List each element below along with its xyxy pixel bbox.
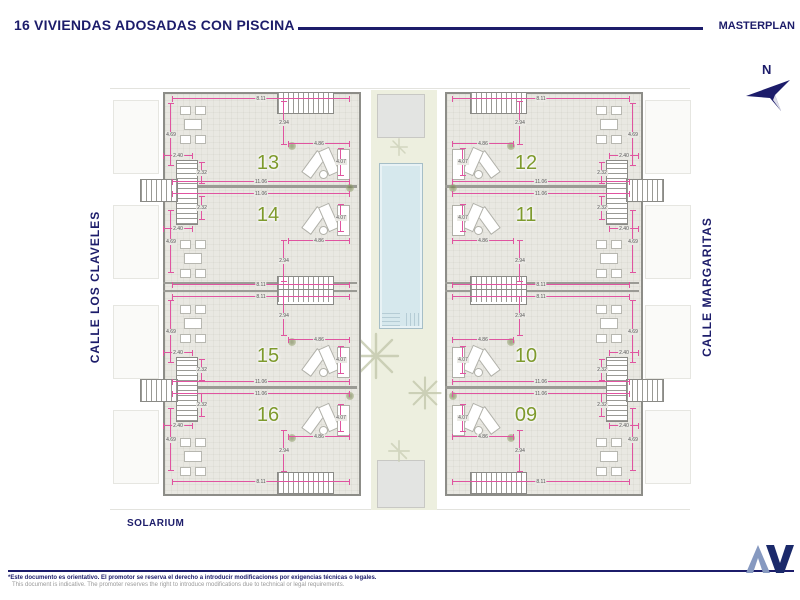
dim: 2.40	[163, 155, 193, 156]
dim-label: 4.69	[165, 437, 177, 443]
dim-label: 11.06	[534, 191, 548, 197]
dim-label: 2.40	[618, 226, 630, 232]
dim-label: 4.07	[335, 215, 347, 221]
unit-number-15: 15	[246, 345, 290, 368]
dim: 4.07	[462, 204, 463, 232]
dim-label: 4.86	[313, 434, 325, 440]
dim-label: 2.40	[618, 423, 630, 429]
dim: 2.94	[519, 430, 520, 472]
deck-bottom	[377, 460, 425, 508]
terrace-table-set	[180, 438, 206, 476]
terrace-table-set	[180, 240, 206, 278]
neighbour-building	[645, 305, 691, 379]
dim-label: 2.94	[278, 258, 290, 264]
dim-label: 4.07	[457, 415, 469, 421]
dim: 2.94	[283, 101, 284, 145]
stair	[470, 472, 527, 494]
dim: 4.69	[170, 103, 171, 166]
dim: 2.40	[163, 228, 193, 229]
dim: 2.94	[519, 101, 520, 145]
entry-stair	[626, 379, 664, 402]
masterplan-page: 16 VIVIENDAS ADOSADAS CON PISCINA MASTER…	[0, 0, 800, 600]
dim-label: 2.94	[278, 448, 290, 454]
dim-label: 2.32	[196, 170, 208, 176]
dim: 2.40	[609, 155, 639, 156]
dim: 4.07	[462, 404, 463, 432]
dim: 2.40	[609, 352, 639, 353]
masterplan-label: MASTERPLAN	[719, 20, 795, 32]
dim-label: 4.69	[627, 132, 639, 138]
dim-label: 2.40	[172, 423, 184, 429]
neighbour-building	[645, 100, 691, 174]
dim: 4.69	[632, 210, 633, 273]
dim: 2.32	[601, 196, 602, 220]
dim: 4.07	[340, 346, 341, 374]
dim-label: 4.69	[165, 239, 177, 245]
neighbour-building	[645, 410, 691, 484]
dim: 2.94	[519, 240, 520, 282]
dim-label: 4.07	[335, 159, 347, 165]
plant	[346, 184, 354, 192]
dim-label: 2.32	[196, 205, 208, 211]
dim: 4.86	[288, 143, 350, 144]
palm-tree	[408, 376, 442, 410]
stair	[277, 92, 334, 114]
neighbour-building	[113, 205, 159, 279]
dim: 4.07	[340, 204, 341, 232]
dim: 4.86	[452, 240, 514, 241]
dim: 2.32	[601, 393, 602, 417]
dim-label: 8.11	[535, 96, 546, 102]
dim: 2.32	[601, 359, 602, 381]
dim: 8.11	[452, 296, 630, 297]
dim: 4.69	[170, 408, 171, 471]
dim: 2.94	[283, 430, 284, 472]
dim: 2.32	[201, 196, 202, 220]
terrace-table-set	[596, 106, 622, 144]
dim-label: 4.69	[627, 437, 639, 443]
palm-tree	[390, 138, 408, 156]
dim-label: 11.06	[534, 179, 548, 185]
solarium-label: SOLARIUM	[127, 518, 184, 529]
dim: 4.07	[462, 346, 463, 374]
dim: 2.40	[609, 228, 639, 229]
stair	[277, 472, 334, 494]
north-arrow-icon	[746, 80, 792, 112]
dim-label: 11.06	[254, 379, 268, 385]
neighbour-building	[113, 410, 159, 484]
dim: 2.40	[609, 425, 639, 426]
dim: 11.06	[452, 181, 630, 182]
terrace-table-set	[596, 240, 622, 278]
dim-label: 2.32	[596, 170, 608, 176]
neighbour-building	[113, 305, 159, 379]
dim-label: 8.11	[255, 282, 266, 288]
unit-number-10: 10	[504, 345, 548, 368]
dim: 8.11	[172, 296, 350, 297]
dim: 4.69	[632, 408, 633, 471]
dim-label: 8.11	[535, 479, 546, 485]
dim-label: 11.06	[534, 379, 548, 385]
dim-label: 4.69	[165, 329, 177, 335]
entry-stair	[176, 357, 198, 422]
dim-label: 2.94	[278, 120, 290, 126]
dim-label: 11.06	[254, 191, 268, 197]
dim: 11.06	[452, 193, 630, 194]
dim-label: 8.11	[255, 294, 266, 300]
dim: 4.86	[452, 436, 514, 437]
dim-label: 11.06	[254, 179, 268, 185]
disclaimer-en: This document is indicative. The promote…	[12, 582, 344, 589]
dim-label: 4.07	[335, 415, 347, 421]
entry-stair	[626, 179, 664, 202]
dim-label: 2.40	[618, 350, 630, 356]
neighbour-building	[113, 100, 159, 174]
dim: 4.69	[632, 300, 633, 363]
dim-label: 8.11	[535, 294, 546, 300]
unit-number-12: 12	[504, 152, 548, 175]
dim: 2.94	[283, 296, 284, 336]
dim-label: 11.06	[534, 391, 548, 397]
dim: 4.07	[340, 148, 341, 176]
dim-label: 2.32	[596, 402, 608, 408]
dim: 2.32	[201, 393, 202, 417]
street-label-left: CALLE LOS CLAVELES	[88, 187, 102, 387]
dim-label: 8.11	[255, 96, 266, 102]
dim-label: 2.94	[514, 258, 526, 264]
disclaimer-es: *Este documento es orientativo. El promo…	[8, 575, 376, 582]
page-title: 16 VIVIENDAS ADOSADAS CON PISCINA	[14, 17, 295, 33]
dim: 4.86	[288, 240, 350, 241]
dim-label: 11.06	[254, 391, 268, 397]
dim: 4.69	[170, 300, 171, 363]
dim-label: 2.40	[172, 153, 184, 159]
header-divider	[298, 27, 703, 30]
dim-label: 4.86	[477, 141, 489, 147]
dim-label: 4.07	[457, 357, 469, 363]
terrace-table-set	[180, 305, 206, 343]
dim-label: 2.94	[514, 120, 526, 126]
unit-number-14: 14	[246, 204, 290, 227]
dim-label: 2.32	[196, 367, 208, 373]
entry-stair	[606, 357, 628, 422]
plant	[449, 184, 457, 192]
dim-label: 4.86	[477, 337, 489, 343]
terrace-table-set	[596, 438, 622, 476]
dim: 4.07	[462, 148, 463, 176]
dim: 11.06	[452, 381, 630, 382]
dim-label: 8.11	[535, 282, 546, 288]
unit-number-13: 13	[246, 152, 290, 175]
neighbour-building	[645, 205, 691, 279]
dim: 4.86	[452, 143, 514, 144]
dim: 4.69	[170, 210, 171, 273]
dim-label: 4.69	[627, 329, 639, 335]
dim-label: 4.69	[165, 132, 177, 138]
dim-label: 4.69	[627, 239, 639, 245]
deck-top	[377, 94, 425, 138]
street-label-right: CALLE MARGARITAS	[700, 187, 714, 387]
dim: 4.86	[452, 339, 514, 340]
palm-tree	[388, 440, 410, 462]
dim: 2.94	[519, 296, 520, 336]
dim-label: 8.11	[255, 479, 266, 485]
dim: 8.11	[172, 284, 350, 285]
swimming-pool	[379, 163, 423, 329]
dim: 8.11	[172, 481, 350, 482]
terrace-table-set	[180, 106, 206, 144]
unit-number-09: 09	[504, 404, 548, 427]
pool-steps	[382, 313, 400, 326]
dim-label: 2.40	[172, 350, 184, 356]
dim: 2.32	[201, 359, 202, 381]
dim: 8.11	[452, 284, 630, 285]
dim: 8.11	[452, 98, 630, 99]
dim: 11.06	[172, 193, 350, 194]
dim: 4.86	[288, 339, 350, 340]
footer-divider	[8, 570, 794, 572]
dim: 11.06	[172, 381, 350, 382]
pool-ladder	[406, 313, 419, 326]
dim: 2.40	[163, 425, 193, 426]
dim: 2.32	[201, 162, 202, 184]
dim-label: 2.94	[514, 313, 526, 319]
dim-label: 4.86	[477, 434, 489, 440]
dim-label: 4.07	[457, 215, 469, 221]
dim-label: 4.86	[477, 238, 489, 244]
dim-label: 2.94	[278, 313, 290, 319]
dim-label: 4.07	[335, 357, 347, 363]
dim-label: 2.32	[196, 402, 208, 408]
dim-label: 2.32	[596, 367, 608, 373]
terrace-table-set	[596, 305, 622, 343]
context-line-top	[110, 88, 690, 89]
unit-number-16: 16	[246, 404, 290, 427]
dim: 11.06	[172, 181, 350, 182]
dim-label: 2.94	[514, 448, 526, 454]
north-label: N	[762, 62, 771, 77]
dim: 8.11	[172, 98, 350, 99]
company-logo	[744, 543, 796, 573]
dim: 2.32	[601, 162, 602, 184]
dim: 4.07	[340, 404, 341, 432]
dim: 2.94	[283, 240, 284, 282]
dim-label: 4.86	[313, 337, 325, 343]
unit-number-11: 11	[504, 204, 548, 227]
dim: 4.86	[288, 436, 350, 437]
dim-label: 2.40	[618, 153, 630, 159]
dim: 4.69	[632, 103, 633, 166]
dim: 2.40	[163, 352, 193, 353]
dim-label: 2.40	[172, 226, 184, 232]
dim: 8.11	[452, 481, 630, 482]
dim-label: 4.07	[457, 159, 469, 165]
dim-label: 2.32	[596, 205, 608, 211]
dim-label: 4.86	[313, 141, 325, 147]
dim-label: 4.86	[313, 238, 325, 244]
